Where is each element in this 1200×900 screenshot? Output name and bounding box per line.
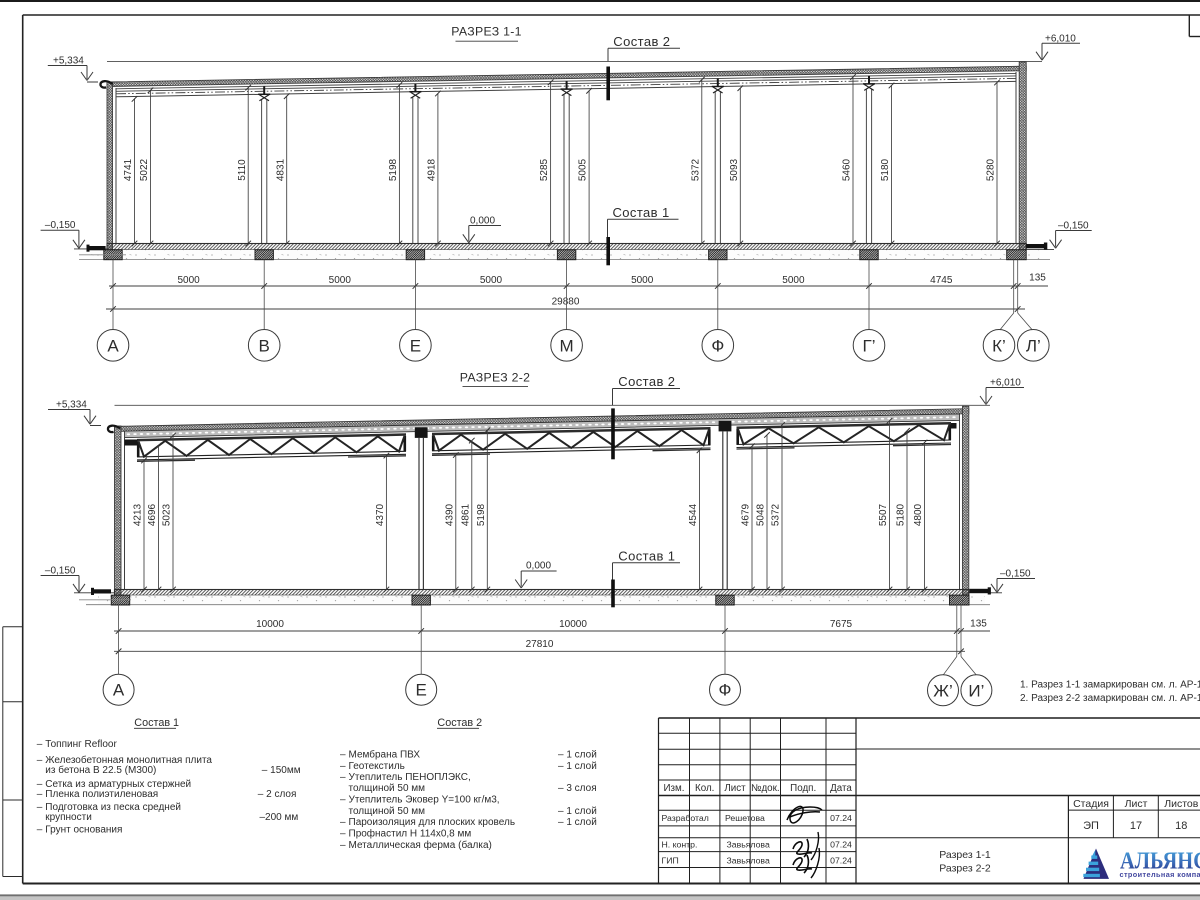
svg-text:Лист: Лист (1125, 798, 1148, 810)
svg-text:5022: 5022 (139, 158, 150, 181)
svg-text:5198: 5198 (388, 158, 399, 181)
svg-text:4831: 4831 (275, 158, 286, 181)
svg-text:4918: 4918 (427, 158, 438, 181)
svg-text:Топпинг Refloor: Топпинг Refloor (45, 739, 117, 750)
svg-text:5280: 5280 (986, 158, 997, 181)
svg-text:5000: 5000 (177, 275, 200, 286)
svg-text:+5,334: +5,334 (56, 400, 87, 411)
svg-text:– 1 слой: – 1 слой (558, 817, 597, 828)
svg-text:Состав 1: Состав 1 (134, 717, 179, 729)
svg-text:Ф: Ф (719, 681, 732, 700)
svg-text:5093: 5093 (729, 158, 740, 181)
svg-text:0,000: 0,000 (526, 561, 551, 572)
svg-text:5507: 5507 (878, 503, 889, 526)
svg-text:4390: 4390 (444, 503, 455, 526)
svg-text:– 3 слоя: – 3 слоя (558, 783, 597, 794)
svg-text:–: – (37, 755, 43, 766)
svg-text:Г’: Г’ (863, 336, 876, 355)
svg-text:из бетона В 22.5 (М300): из бетона В 22.5 (М300) (45, 764, 156, 776)
svg-text:–: – (37, 789, 43, 800)
svg-text:толщиной 50 мм: толщиной 50 мм (349, 783, 426, 794)
svg-text:–: – (37, 739, 43, 750)
svg-text:135: 135 (1029, 273, 1046, 284)
svg-text:Листов: Листов (1164, 798, 1199, 810)
svg-text:Грунт основания: Грунт основания (45, 825, 122, 836)
svg-text:Металлическая ферма (балка): Металлическая ферма (балка) (349, 839, 492, 851)
svg-text:А: А (113, 681, 125, 700)
svg-text:–: – (37, 802, 43, 813)
svg-text:2. Разрез 2-2 замаркирован см.: 2. Разрез 2-2 замаркирован см. л. АР-19 (1020, 693, 1200, 704)
svg-text:5460: 5460 (842, 158, 853, 181)
svg-text:5110: 5110 (237, 159, 248, 181)
svg-text:Пленка полиэтиленовая: Пленка полиэтиленовая (45, 789, 158, 800)
svg-text:– 150мм: – 150мм (262, 765, 301, 776)
svg-text:0,000: 0,000 (470, 216, 495, 227)
svg-text:Е: Е (416, 681, 427, 700)
svg-text:–: – (340, 750, 346, 761)
svg-text:Изм.: Изм. (664, 783, 685, 794)
svg-text:Мембрана ПВХ: Мембрана ПВХ (349, 749, 421, 761)
svg-text:+6,010: +6,010 (990, 378, 1021, 389)
svg-text:Завьялова: Завьялова (727, 855, 770, 865)
svg-text:5000: 5000 (480, 275, 503, 286)
svg-text:5000: 5000 (631, 275, 654, 286)
svg-text:крупности: крупности (45, 812, 92, 823)
svg-text:–: – (340, 795, 346, 806)
svg-text:5372: 5372 (771, 503, 782, 526)
svg-text:–0,150: –0,150 (1058, 220, 1089, 231)
svg-text:№док.: №док. (751, 783, 780, 794)
svg-text:толщиной 50 мм: толщиной 50 мм (349, 806, 426, 817)
svg-text:07.24: 07.24 (830, 855, 852, 865)
svg-text:–: – (340, 817, 346, 828)
svg-text:Состав 2: Состав 2 (618, 374, 675, 389)
svg-text:Утеплитель ПЕНОПЛЭКС,: Утеплитель ПЕНОПЛЭКС, (349, 772, 471, 783)
svg-text:– 1 слой: – 1 слой (558, 806, 597, 817)
svg-text:строительная компания: строительная компания (1120, 870, 1200, 879)
svg-text:18: 18 (1175, 820, 1187, 832)
svg-text:–: – (340, 829, 346, 840)
svg-text:Утеплитель Эковер Y=100 кг/м3,: Утеплитель Эковер Y=100 кг/м3, (349, 795, 500, 806)
svg-text:–0,150: –0,150 (45, 220, 76, 231)
svg-text:Геотекстиль: Геотекстиль (349, 761, 405, 772)
svg-text:1. Разрез 1-1 замаркирован см.: 1. Разрез 1-1 замаркирован см. л. АР-19 (1020, 680, 1200, 691)
svg-text:5372: 5372 (690, 158, 701, 181)
svg-text:5005: 5005 (578, 158, 589, 181)
svg-text:29880: 29880 (552, 297, 580, 308)
svg-text:Состав 2: Состав 2 (613, 34, 670, 49)
svg-text:И’: И’ (968, 681, 984, 700)
svg-text:–: – (340, 840, 346, 851)
svg-text:5198: 5198 (476, 503, 487, 526)
svg-text:–: – (37, 825, 43, 836)
svg-text:4800: 4800 (913, 503, 924, 526)
svg-text:4861: 4861 (460, 503, 471, 526)
svg-text:+5,334: +5,334 (53, 56, 84, 67)
svg-text:Решетова: Решетова (725, 813, 765, 823)
svg-text:Завьялова: Завьялова (727, 840, 770, 850)
svg-text:135: 135 (970, 619, 987, 630)
svg-text:ГИП: ГИП (662, 855, 679, 865)
svg-text:5000: 5000 (782, 275, 805, 286)
svg-text:7675: 7675 (830, 619, 853, 630)
svg-text:Стадия: Стадия (1073, 798, 1109, 810)
svg-text:М: М (560, 336, 574, 355)
svg-text:10000: 10000 (559, 619, 587, 630)
svg-text:5000: 5000 (329, 275, 352, 286)
svg-text:Разрез 2-2: Разрез 2-2 (939, 862, 991, 874)
svg-text:–: – (340, 772, 346, 783)
svg-text:Ж’: Ж’ (933, 681, 952, 700)
svg-text:5285: 5285 (539, 158, 550, 181)
svg-text:– 1 слой: – 1 слой (558, 750, 597, 761)
svg-text:Состав 1: Состав 1 (618, 549, 675, 564)
svg-text:07.24: 07.24 (830, 840, 852, 850)
svg-text:5180: 5180 (880, 158, 891, 181)
svg-text:–0,150: –0,150 (45, 566, 76, 577)
svg-text:5180: 5180 (896, 503, 907, 526)
svg-text:17: 17 (1130, 820, 1142, 832)
svg-text:Е: Е (410, 336, 421, 355)
svg-text:07.24: 07.24 (830, 813, 852, 823)
svg-text:– 2 слоя: – 2 слоя (258, 789, 297, 800)
svg-text:4544: 4544 (688, 503, 699, 526)
svg-text:Подп.: Подп. (790, 783, 816, 794)
svg-text:Профнастил Н 114х0,8 мм: Профнастил Н 114х0,8 мм (349, 828, 472, 840)
svg-text:5023: 5023 (162, 503, 173, 526)
svg-text:Л’: Л’ (1026, 336, 1041, 355)
svg-text:4213: 4213 (133, 503, 144, 526)
svg-text:4370: 4370 (375, 503, 386, 526)
svg-text:Дата: Дата (830, 783, 852, 794)
svg-text:В: В (259, 336, 270, 355)
svg-text:Н. контр.: Н. контр. (662, 840, 698, 850)
svg-text:Кол.: Кол. (695, 783, 714, 794)
svg-text:4741: 4741 (123, 158, 134, 181)
svg-text:А: А (107, 336, 119, 355)
svg-text:27810: 27810 (526, 639, 554, 650)
svg-text:К’: К’ (992, 336, 1006, 355)
svg-text:4745: 4745 (930, 275, 953, 286)
svg-text:–: – (340, 761, 346, 772)
svg-text:Разрез 1-1: Разрез 1-1 (939, 849, 991, 861)
svg-text:–0,150: –0,150 (1000, 569, 1031, 580)
svg-text:Разработал: Разработал (662, 813, 709, 823)
svg-text:Ф: Ф (711, 336, 724, 355)
svg-text:РАЗРЕЗ 1-1: РАЗРЕЗ 1-1 (451, 25, 522, 39)
svg-text:ЭП: ЭП (1083, 820, 1099, 832)
svg-text:Состав 1: Состав 1 (613, 205, 670, 220)
svg-text:Состав 2: Состав 2 (437, 717, 482, 729)
svg-text:–200 мм: –200 мм (260, 812, 299, 823)
svg-text:4679: 4679 (741, 503, 752, 526)
svg-text:РАЗРЕЗ 2-2: РАЗРЕЗ 2-2 (460, 370, 531, 384)
svg-text:4696: 4696 (147, 503, 158, 526)
svg-text:5048: 5048 (756, 503, 767, 526)
svg-text:– 1 слой: – 1 слой (558, 761, 597, 772)
svg-text:10000: 10000 (256, 619, 284, 630)
svg-text:Лист: Лист (724, 783, 746, 794)
svg-text:Пароизоляция для плоских крове: Пароизоляция для плоских кровель (349, 817, 516, 828)
